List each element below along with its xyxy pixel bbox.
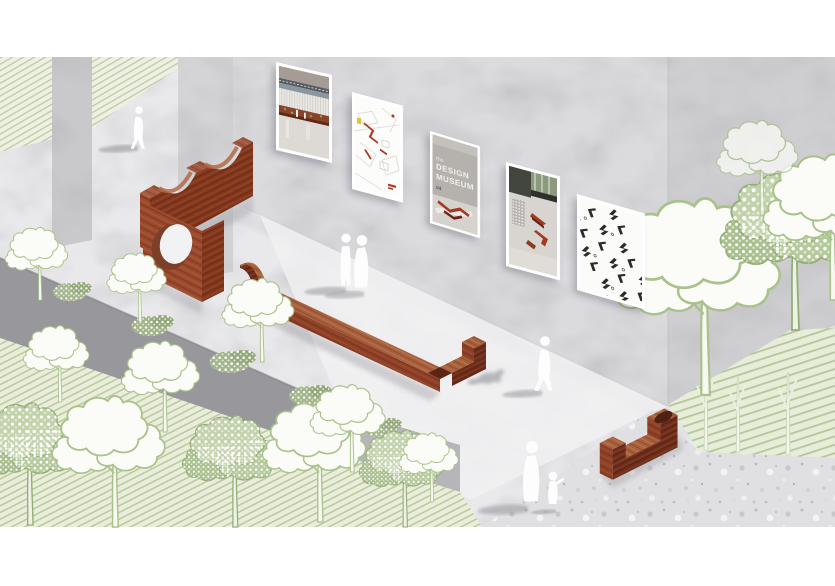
poster-interior-axon (506, 162, 560, 280)
axonometric-scene: the DESIGN MUSEUM #4 (0, 0, 835, 586)
poster-site-plan (352, 92, 403, 203)
concrete-pillar (52, 57, 92, 248)
slab-side (202, 220, 224, 302)
poster-interior-render (276, 62, 332, 163)
illustration-page: the DESIGN MUSEUM #4 (0, 0, 835, 586)
poster-design-museum: the DESIGN MUSEUM #4 (430, 131, 480, 238)
